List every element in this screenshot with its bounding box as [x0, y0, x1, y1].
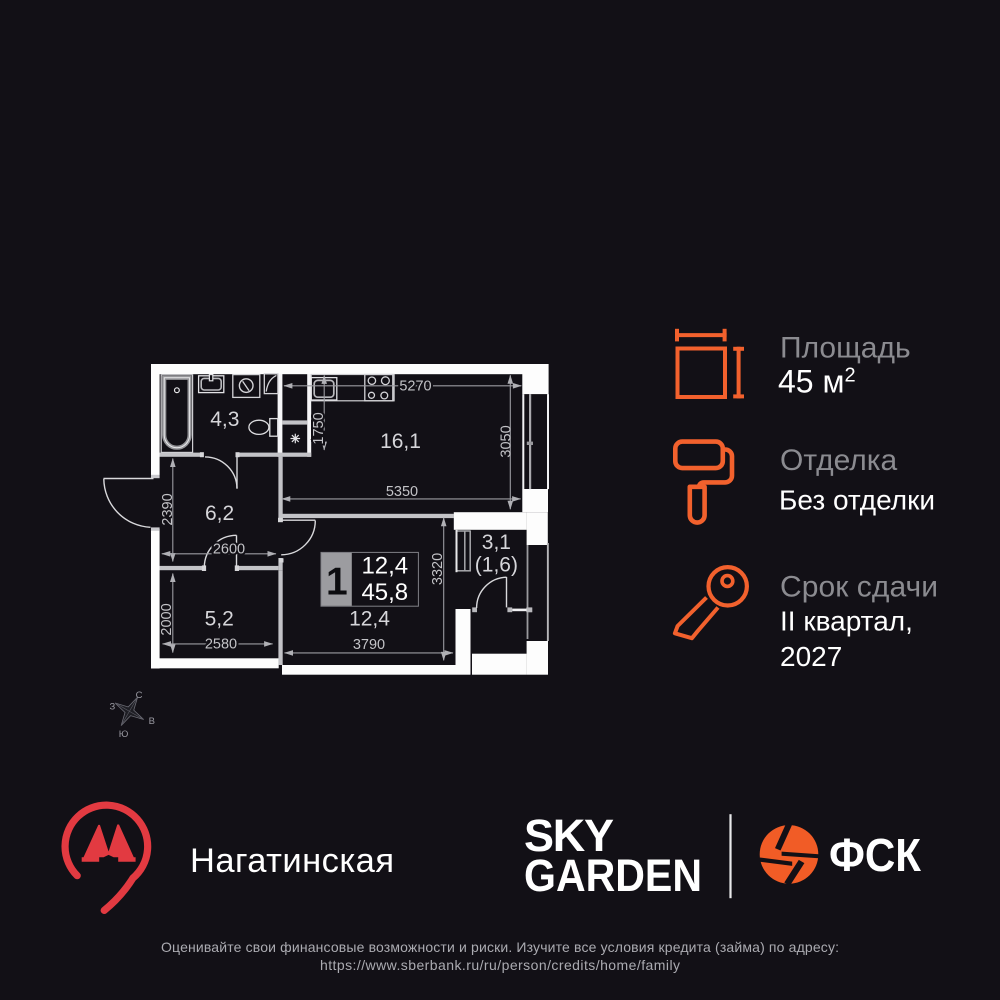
svg-text:3320: 3320	[430, 553, 446, 585]
svg-text:3050: 3050	[498, 425, 514, 457]
svg-text:ФСК: ФСК	[829, 829, 922, 881]
svg-text:12,4: 12,4	[361, 553, 408, 580]
svg-text:https://www.sberbank.ru/ru/per: https://www.sberbank.ru/ru/person/credit…	[320, 957, 680, 973]
svg-text:2390: 2390	[160, 493, 176, 525]
svg-text:5,2: 5,2	[205, 608, 234, 631]
svg-text:Без отделки: Без отделки	[779, 484, 935, 515]
svg-text:Нагатинская: Нагатинская	[190, 842, 394, 880]
svg-text:Оценивайте свои финансовые воз: Оценивайте свои финансовые возможности и…	[161, 939, 839, 955]
svg-text:Площадь: Площадь	[780, 332, 911, 365]
svg-text:4,3: 4,3	[210, 408, 239, 431]
svg-text:6,2: 6,2	[205, 502, 234, 525]
svg-text:З: З	[110, 702, 116, 713]
svg-text:Срок сдачи: Срок сдачи	[780, 571, 938, 604]
svg-text:5350: 5350	[386, 484, 418, 500]
svg-text:(1,6): (1,6)	[475, 554, 518, 577]
svg-text:3790: 3790	[353, 637, 385, 653]
svg-text:45,8: 45,8	[361, 579, 408, 606]
svg-text:Отделка: Отделка	[780, 444, 898, 477]
svg-text:С: С	[136, 690, 143, 701]
svg-text:12,4: 12,4	[349, 608, 390, 631]
svg-text:3,1: 3,1	[482, 531, 511, 554]
svg-text:GARDEN: GARDEN	[524, 850, 702, 901]
svg-text:2600: 2600	[213, 541, 245, 557]
svg-text:II квартал,: II квартал,	[780, 606, 913, 637]
svg-text:45 м2: 45 м2	[778, 364, 856, 400]
svg-text:5270: 5270	[399, 379, 431, 395]
svg-text:В: В	[149, 716, 155, 727]
svg-text:1750: 1750	[311, 412, 327, 444]
svg-text:Ю: Ю	[119, 729, 129, 740]
svg-text:2027: 2027	[780, 641, 842, 672]
svg-text:16,1: 16,1	[380, 430, 421, 453]
svg-text:1: 1	[326, 561, 348, 604]
svg-text:2000: 2000	[159, 603, 175, 635]
svg-text:2580: 2580	[205, 637, 237, 653]
